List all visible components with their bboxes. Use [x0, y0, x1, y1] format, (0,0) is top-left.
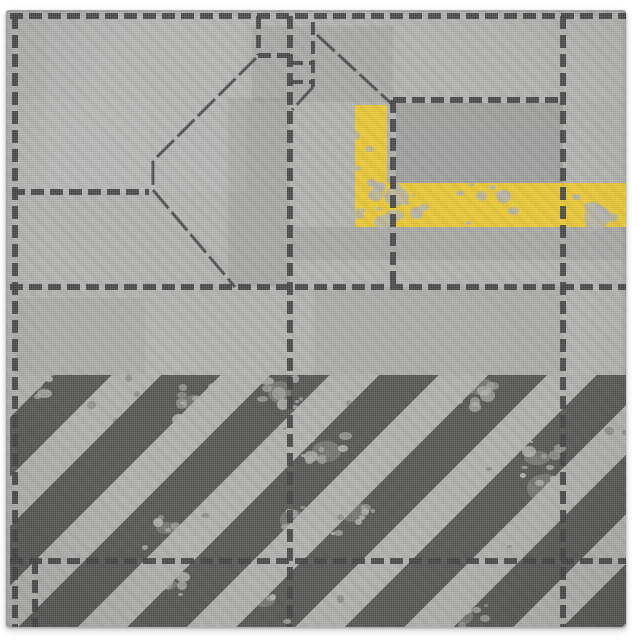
product-photo	[0, 0, 644, 644]
panel-line-vertical	[32, 561, 38, 627]
panel-line-vertical	[287, 16, 293, 627]
panel-line-horizontal	[12, 189, 149, 195]
panel-line-vertical	[256, 16, 261, 55]
panel-line-horizontal	[290, 61, 313, 65]
panel-dashed-lines	[6, 10, 626, 627]
panel-line-horizontal	[258, 53, 290, 58]
panel-line-horizontal	[10, 284, 626, 290]
panel-line-vertical	[560, 16, 566, 627]
panel-line-vertical	[390, 100, 396, 287]
panel-line-horizontal	[10, 558, 626, 564]
panel-line-horizontal	[393, 97, 566, 103]
panel-line-vertical	[12, 16, 18, 627]
panel-line-vertical	[311, 22, 315, 87]
panel-line-horizontal	[290, 80, 313, 84]
fabric-swatch	[6, 10, 626, 627]
panel-line-horizontal	[10, 13, 626, 19]
